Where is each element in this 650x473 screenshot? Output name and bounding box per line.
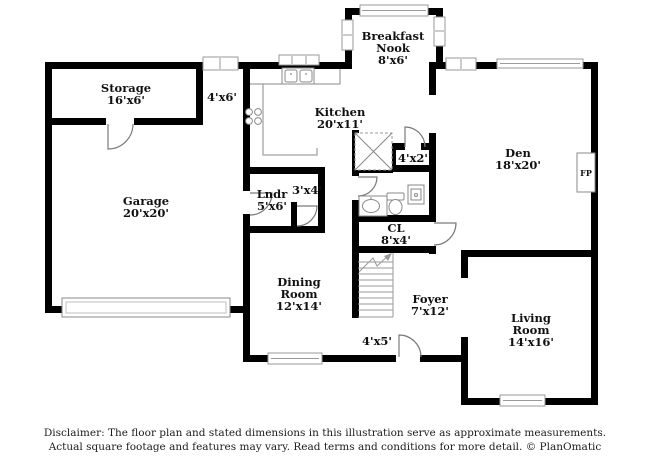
staircase <box>358 253 393 317</box>
window <box>342 20 353 50</box>
room-dims-entry: 4'x5' <box>362 334 392 348</box>
stairs-arrowhead <box>384 253 392 261</box>
room-dims-den: 18'x20' <box>495 158 541 172</box>
window <box>203 57 238 70</box>
storage-door <box>108 124 133 149</box>
room-dims-dining: 12'x14' <box>276 299 322 313</box>
garage-door <box>62 298 230 317</box>
window <box>446 58 476 70</box>
fireplace-label: FP <box>580 168 592 178</box>
kitchen-sink <box>282 68 314 84</box>
room-dims-laundry: 5'x6' <box>257 199 287 213</box>
front-door <box>399 335 421 357</box>
room-dims-foyer: 7'x12' <box>411 304 449 318</box>
closet-3x4-door <box>297 206 317 226</box>
window <box>434 17 445 46</box>
floor-plan: FP Storage 16'x6' 4'x6' Breakfas <box>0 0 650 473</box>
bathroom-vanity <box>359 196 387 216</box>
room-dims-closet-4x2: 4'x2' <box>398 151 428 165</box>
disclaimer-line-1: Disclaimer: The floor plan and stated di… <box>44 427 606 439</box>
bathroom-sink <box>408 185 424 204</box>
room-dims-living: 14'x16' <box>508 335 554 349</box>
room-dims-hall-closet: 4'x6' <box>207 90 237 104</box>
window <box>500 395 545 406</box>
room-dims-storage: 16'x6' <box>107 93 145 107</box>
bathroom-door <box>358 177 377 196</box>
disclaimer: Disclaimer: The floor plan and stated di… <box>44 427 606 453</box>
fireplace: FP <box>577 153 595 192</box>
room-dims-breakfast-nook: 8'x6' <box>378 53 408 67</box>
shower <box>355 133 392 170</box>
room-dims-garage: 20'x20' <box>123 206 169 220</box>
room-dims-closet-3x4: 3'x4' <box>292 183 322 197</box>
window <box>268 353 322 364</box>
disclaimer-line-2: Actual square footage and features may v… <box>48 441 602 453</box>
window <box>279 55 319 65</box>
toilet <box>387 193 404 215</box>
window <box>360 5 428 16</box>
room-dims-kitchen: 20'x11' <box>317 117 363 131</box>
window <box>497 59 583 68</box>
room-dims-closet-cl: 8'x4' <box>381 233 411 247</box>
den-hall-door <box>434 223 456 245</box>
